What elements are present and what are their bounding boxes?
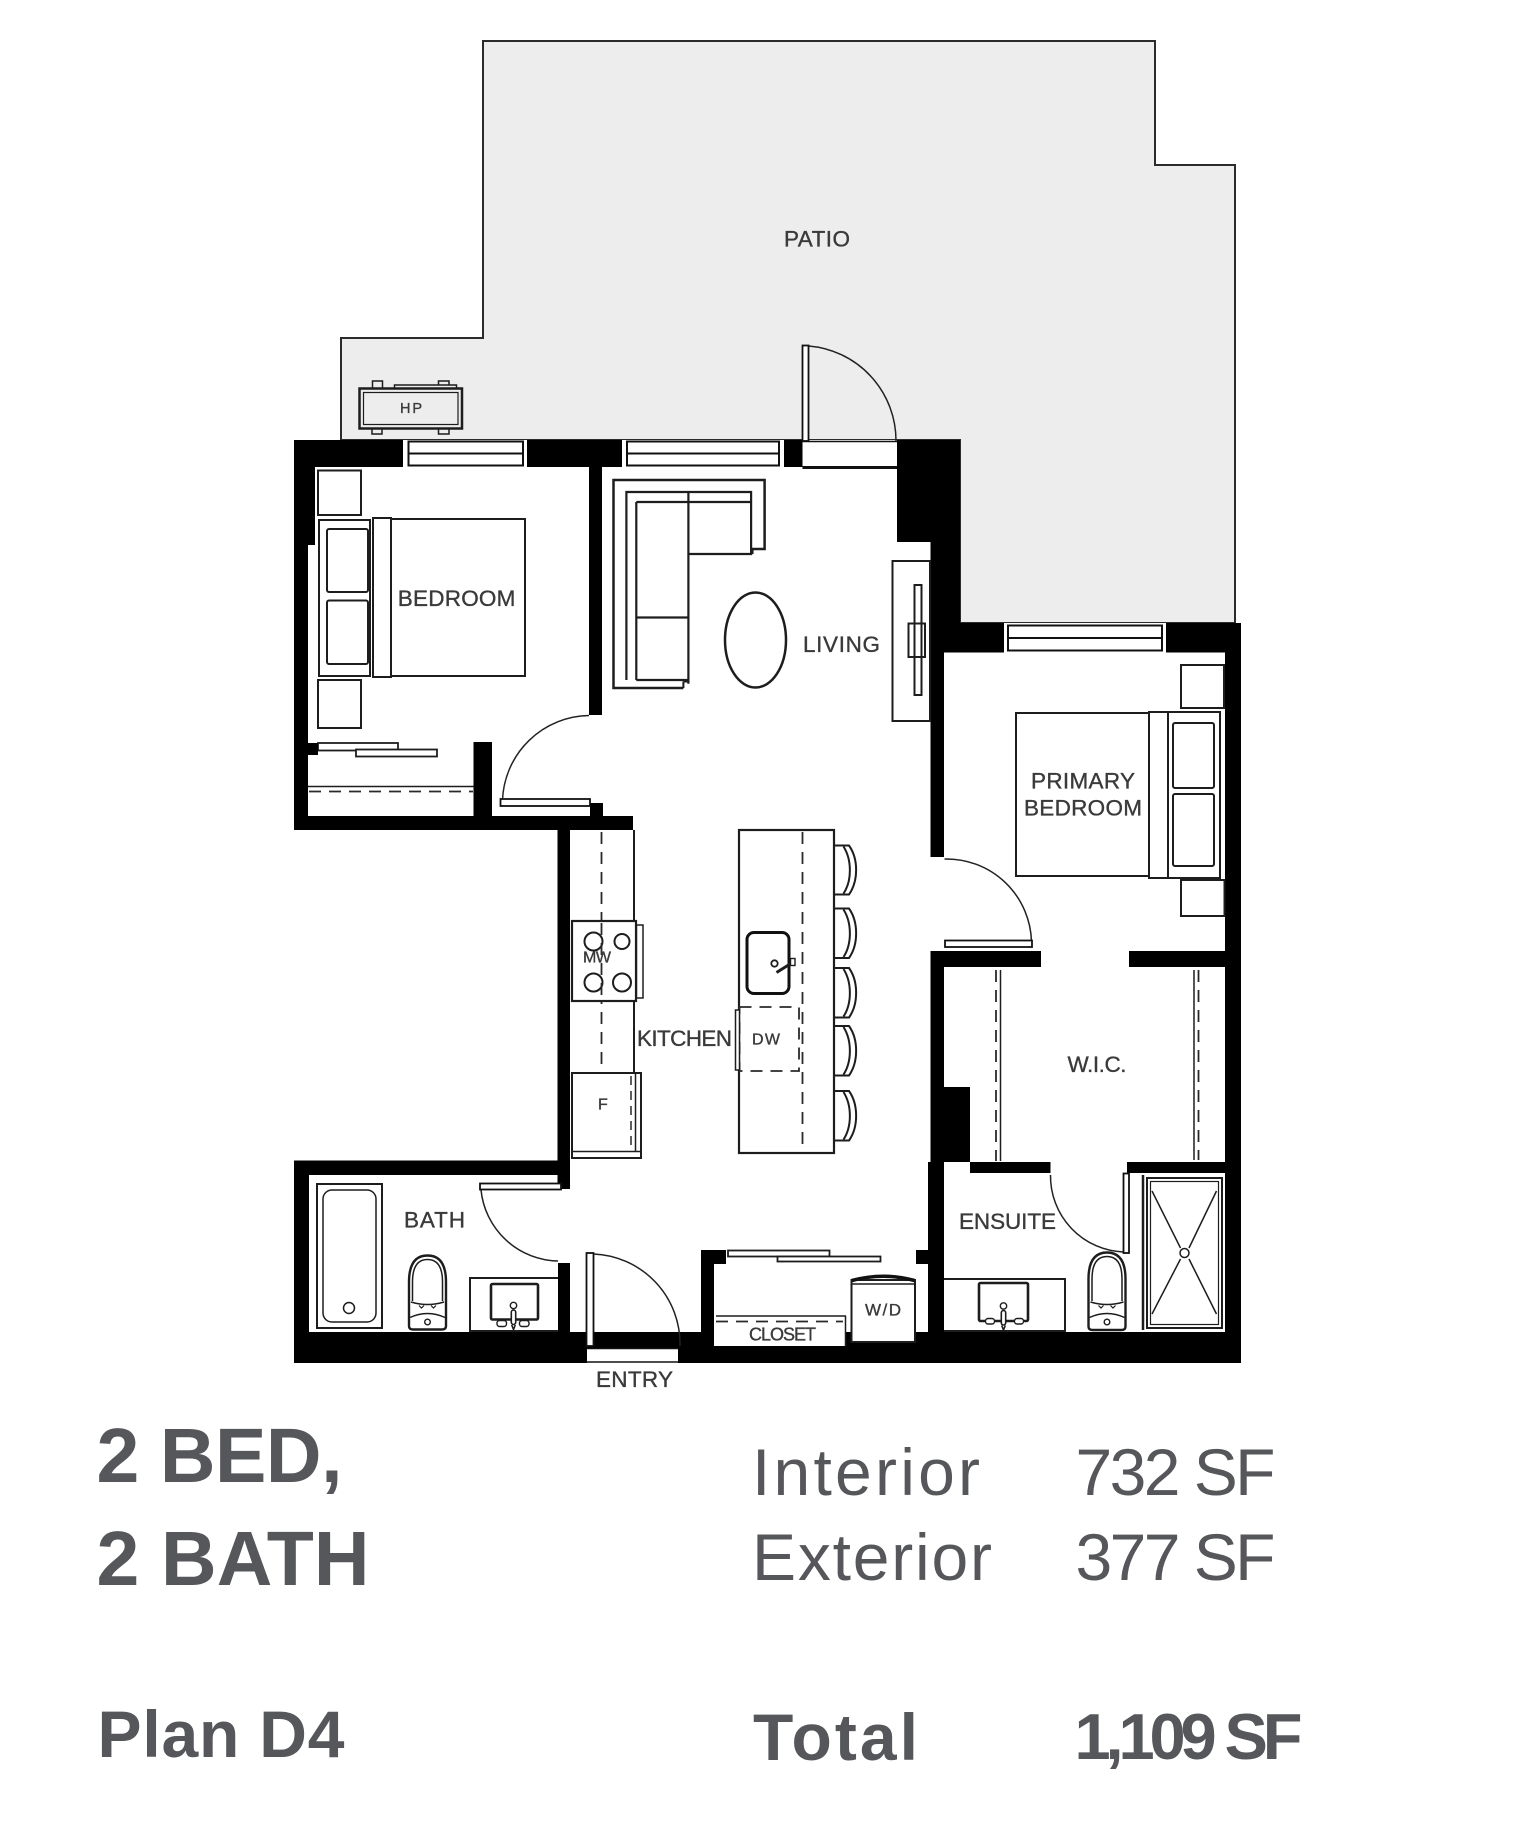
svg-text:DW: DW [752,1032,781,1049]
svg-text:BEDROOM: BEDROOM [1024,796,1142,821]
svg-text:PRIMARY: PRIMARY [1031,769,1135,794]
svg-text:CLOSET: CLOSET [749,1325,816,1345]
svg-text:PATIO: PATIO [784,227,850,252]
svg-text:W.I.C.: W.I.C. [1068,1052,1127,1077]
svg-text:BATH: BATH [404,1208,465,1233]
svg-text:F: F [598,1097,608,1114]
svg-text:Interior: Interior [752,1435,980,1509]
svg-text:377 SF: 377 SF [1076,1520,1276,1594]
svg-text:2 BATH: 2 BATH [97,1516,370,1602]
svg-text:MW: MW [583,950,612,967]
svg-text:ENTRY: ENTRY [596,1367,673,1392]
svg-text:BEDROOM: BEDROOM [398,586,516,611]
svg-text:1,109 SF: 1,109 SF [1075,1700,1303,1773]
svg-text:732 SF: 732 SF [1076,1435,1276,1509]
svg-text:Total: Total [753,1700,918,1774]
svg-text:ENSUITE: ENSUITE [959,1209,1056,1234]
svg-text:Exterior: Exterior [752,1520,992,1594]
svg-text:KITCHEN: KITCHEN [637,1026,732,1051]
svg-text:W/D: W/D [865,1301,901,1320]
svg-text:2 BED,: 2 BED, [97,1413,343,1499]
svg-text:Plan D4: Plan D4 [98,1697,345,1771]
svg-text:LIVING: LIVING [803,632,880,657]
